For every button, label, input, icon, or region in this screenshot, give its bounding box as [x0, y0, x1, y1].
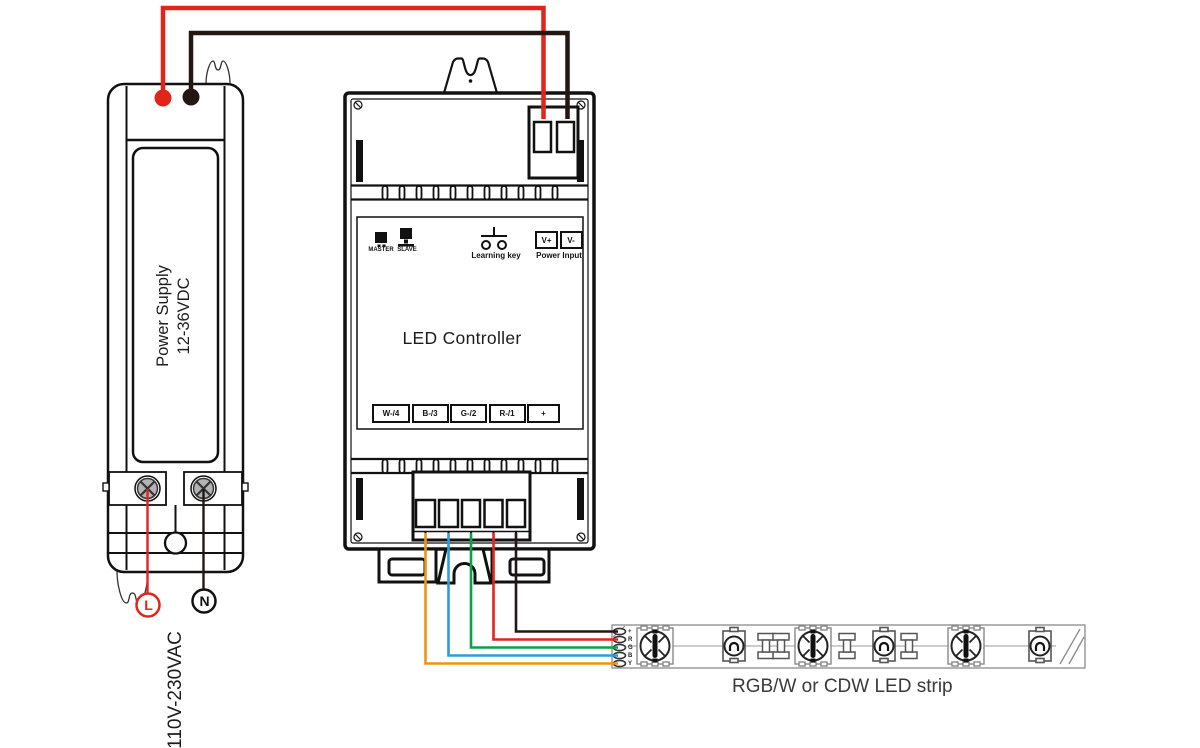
output-terminal-r: R-/1 — [489, 404, 526, 423]
output-terminal-block — [413, 472, 530, 540]
output-terminal-plus: + — [527, 404, 560, 423]
strip-pad-label-g: G — [628, 644, 633, 652]
power-input-terminal-block — [529, 107, 578, 178]
led-strip-graphic — [612, 625, 1085, 668]
output-terminal-b: B-/3 — [412, 404, 449, 423]
slave-label: SLAVE — [385, 247, 429, 253]
vent-slots-top — [351, 186, 588, 200]
power-supply-name: Power Supply — [153, 216, 174, 416]
power-input-label: Power Input — [517, 251, 601, 260]
output-terminal-w: W-/4 — [372, 404, 410, 423]
neutral-marker: N — [196, 593, 213, 610]
output-terminal-g: G-/2 — [450, 404, 487, 423]
strip-caption: RGB/W or CDW LED strip — [732, 676, 1012, 698]
strip-pad-label-b: B — [628, 652, 632, 660]
strip-pad-label-r: R — [628, 636, 632, 644]
controller-title: LED Controller — [362, 328, 562, 349]
power-supply-label: Power Supply 12-36VDC — [153, 216, 197, 416]
wiring-diagram: Power Supply 12-36VDC 110V-230VAC L N MA… — [0, 0, 1200, 748]
din-tab-bottom — [438, 549, 491, 583]
mounting-feet — [379, 549, 549, 583]
terminal-v-plus: V+ — [535, 231, 558, 249]
terminal-v-minus: V- — [560, 231, 583, 249]
strip-pad-label-y: Y — [628, 660, 632, 668]
power-supply-voltage: 12-36VDC — [174, 216, 195, 416]
led-controller-body — [345, 59, 594, 584]
ac-input-label: 110V-230VAC — [165, 610, 187, 748]
strip-pad-label-plus: + — [628, 628, 632, 636]
live-marker: L — [140, 597, 157, 614]
mounting-tab-top — [206, 61, 230, 84]
din-tab-top — [444, 59, 497, 94]
